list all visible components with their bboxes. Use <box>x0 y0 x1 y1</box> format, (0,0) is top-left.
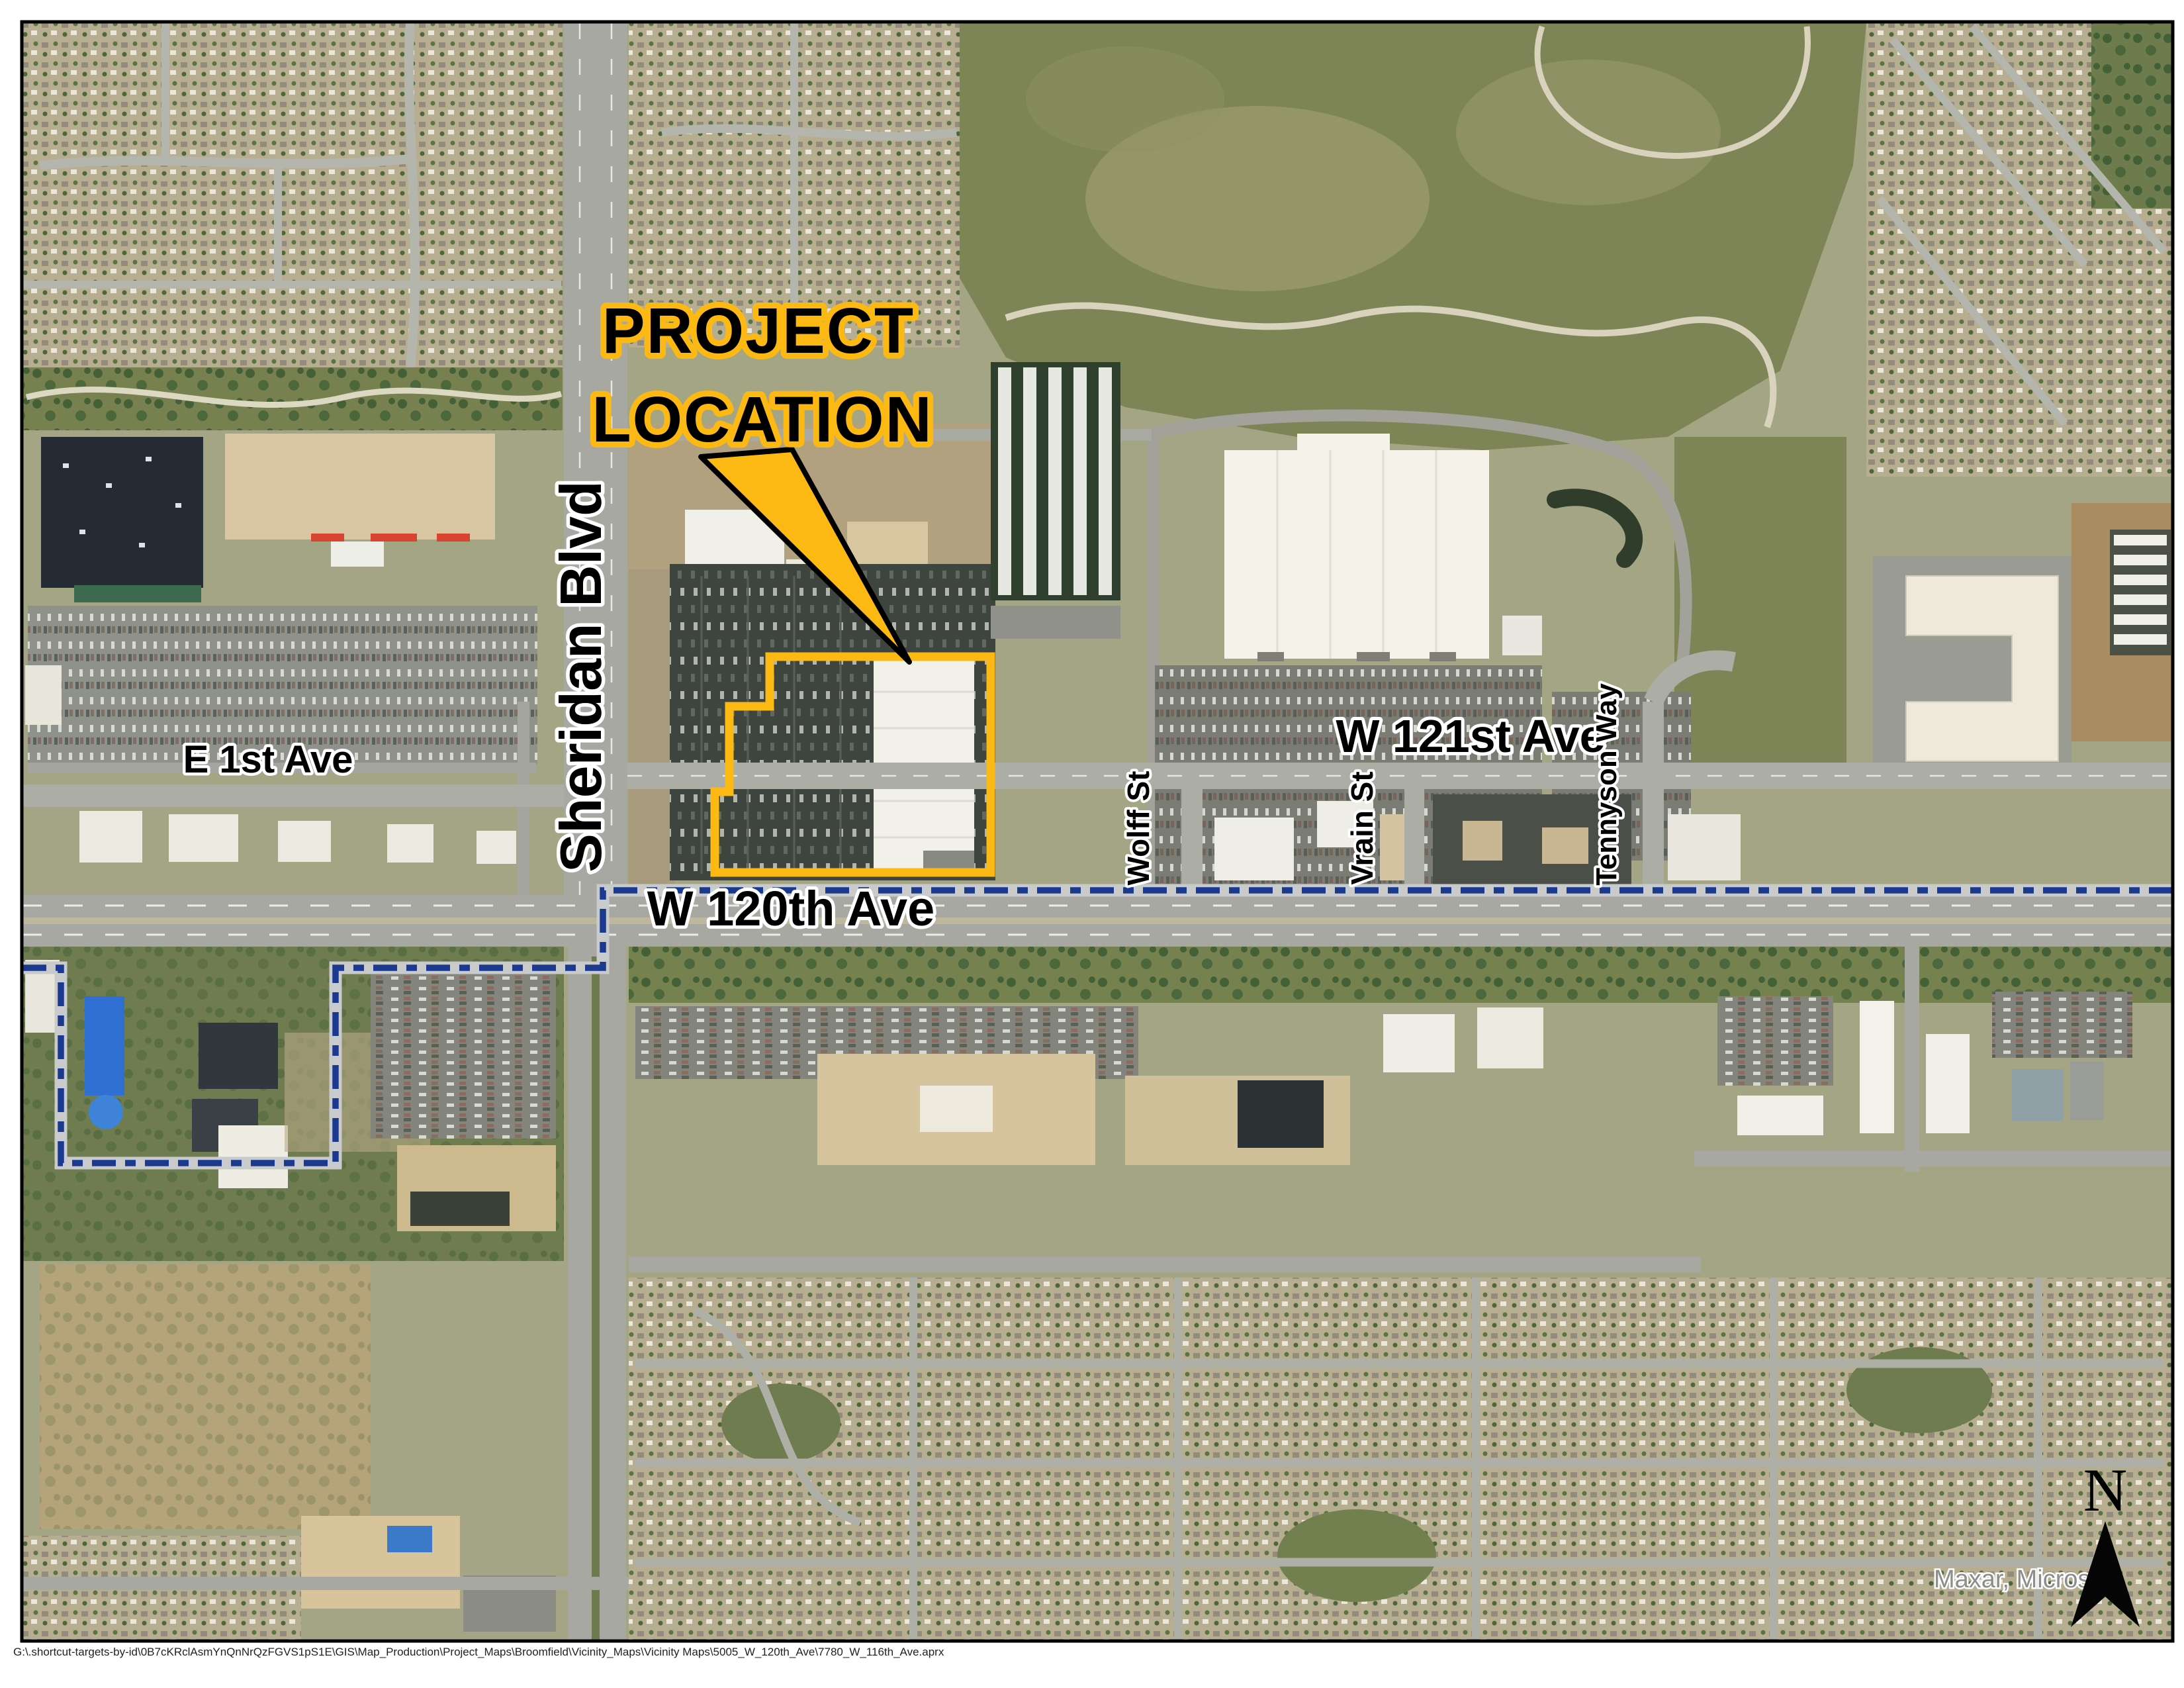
street-label-sheridan-blvd: Sheridan Blvd <box>548 481 614 872</box>
office-building <box>1926 1034 1970 1133</box>
project-file-path: G:\.shortcut-targets-by-id\0B7cKRclAsmYn… <box>13 1646 944 1658</box>
apartment-courtyard <box>1542 827 1588 864</box>
rooftop-solar <box>410 1192 510 1226</box>
parking-cars <box>1717 996 1833 1086</box>
dark-roof-store <box>41 437 203 588</box>
tan-building-roof-center <box>920 1086 993 1132</box>
residential-area-northwest <box>23 23 563 371</box>
map-canvas: PROJECT LOCATION Sheridan Blvd E 1st Ave… <box>0 0 2184 1688</box>
mall-entry <box>331 541 384 567</box>
north-arrow-label: N <box>2083 1456 2127 1524</box>
commercial-building <box>1477 1008 1543 1068</box>
street-label-tennyson-way: Tennyson Way <box>1590 683 1623 886</box>
small-lot <box>991 606 1120 639</box>
green-area-east-of-walmart <box>1674 437 1846 768</box>
dirt-strip-west-of-site <box>629 569 675 894</box>
street-label-w-120th-ave: W 120th Ave <box>647 881 935 936</box>
outbuilding <box>1502 616 1542 655</box>
road-east-segment <box>1694 1150 2173 1166</box>
commercial-building <box>1668 814 1741 880</box>
street-label-w-121st-ave: W 121st Ave <box>1336 710 1605 762</box>
walmart-building <box>1224 450 1489 659</box>
dark-building <box>1238 1080 1324 1148</box>
waterslide <box>99 1033 122 1092</box>
road-wolff-st <box>1181 789 1203 895</box>
project-location-label-line1: PROJECT <box>602 295 915 367</box>
apartment-courtyard <box>1463 821 1502 861</box>
commercial-building <box>1383 1014 1455 1072</box>
commercial-building <box>1737 1096 1823 1135</box>
street-label-e-1st-ave: E 1st Ave <box>183 738 353 781</box>
commercial-building <box>1214 818 1294 880</box>
sheridan-median <box>592 957 600 1642</box>
vicinity-map-page: PROJECT LOCATION Sheridan Blvd E 1st Ave… <box>0 0 2184 1688</box>
rec-pool <box>387 1526 432 1552</box>
park-green <box>1277 1509 1436 1602</box>
street-label-wolff-st: Wolff St <box>1121 771 1156 886</box>
green-roof-strip <box>74 585 201 602</box>
waterpark-building <box>199 1023 278 1089</box>
blue-roof-building <box>2012 1069 2064 1121</box>
road-south-segment <box>629 1256 1701 1272</box>
aerial-imagery <box>23 23 2173 1642</box>
parking-cars <box>1992 992 2132 1058</box>
road-e-1st-ave <box>23 784 564 807</box>
rec-center <box>301 1516 460 1609</box>
field-shrubs <box>40 1264 371 1529</box>
project-location-label-line2: LOCATION <box>592 383 933 455</box>
mall-building <box>225 434 495 539</box>
parking-cars <box>371 973 556 1139</box>
office-building <box>1860 1001 1894 1133</box>
pool <box>89 1095 123 1129</box>
edge-building <box>25 665 62 725</box>
road-tennyson-way <box>1643 702 1664 895</box>
side-street-south <box>1905 947 1919 1172</box>
road-vrain-st <box>1404 789 1424 895</box>
street-label-vrain-st: Vrain St <box>1345 771 1379 884</box>
road-median <box>23 917 2173 924</box>
gray-building <box>2070 1062 2103 1120</box>
loading-dock <box>923 851 974 869</box>
dry-grass-patch <box>1026 46 1224 152</box>
road-southwest <box>23 1577 629 1590</box>
mall-red-awnings <box>311 534 470 541</box>
verge-trees <box>629 947 2173 1003</box>
